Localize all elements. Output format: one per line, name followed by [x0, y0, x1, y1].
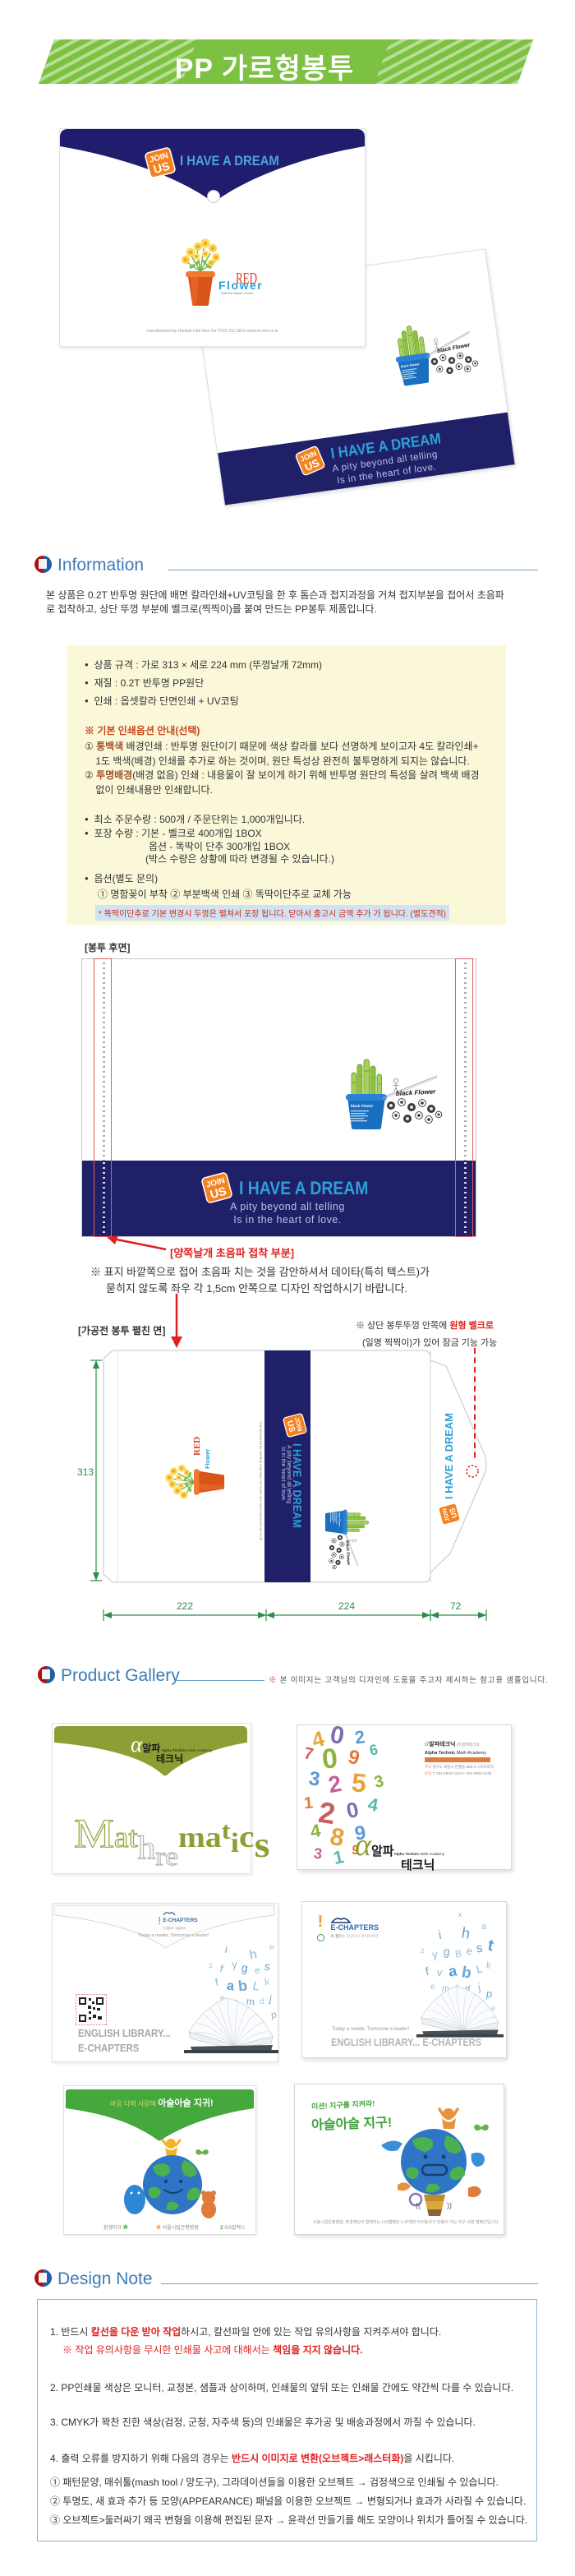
svg-text:I HAVE A DREAM: I HAVE A DREAM: [291, 1443, 303, 1528]
svg-text:Flower: Flower: [204, 1449, 211, 1469]
svg-text:I HAVE A DREAM: I HAVE A DREAM: [443, 1413, 455, 1499]
svg-text:313: 313: [77, 1466, 94, 1478]
svg-text:224: 224: [338, 1600, 355, 1612]
svg-text:Is in the heart of love.: Is in the heart of love.: [280, 1447, 286, 1502]
svg-text:manufactured by Hankuk Hak Won: manufactured by Hankuk Hak Won Sa T.031-…: [259, 1422, 263, 1541]
svg-text:A pity beyond all telling: A pity beyond all telling: [286, 1445, 292, 1503]
svg-text:72: 72: [450, 1600, 462, 1612]
svg-text:RED: RED: [192, 1437, 202, 1456]
svg-text:222: 222: [177, 1600, 193, 1612]
